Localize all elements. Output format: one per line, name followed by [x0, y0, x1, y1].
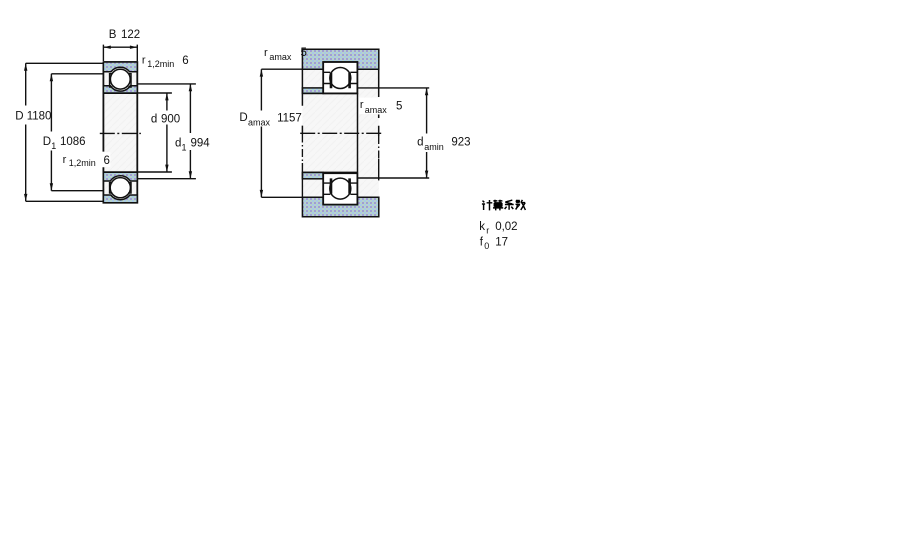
svg-text:r: r — [360, 99, 364, 111]
svg-text:1,2min: 1,2min — [69, 158, 96, 168]
svg-text:6: 6 — [182, 55, 188, 67]
svg-text:1180: 1180 — [27, 110, 52, 122]
svg-text:B: B — [109, 29, 117, 41]
svg-text:amax: amax — [365, 105, 388, 115]
svg-text:r: r — [486, 226, 489, 236]
svg-text:122: 122 — [121, 29, 140, 41]
svg-text:1: 1 — [182, 143, 187, 153]
svg-text:r: r — [264, 47, 268, 59]
svg-text:0: 0 — [484, 241, 489, 251]
svg-text:994: 994 — [191, 138, 211, 150]
svg-text:r: r — [142, 54, 146, 66]
svg-text:r: r — [63, 154, 67, 166]
svg-text:amin: amin — [424, 142, 444, 152]
svg-text:5: 5 — [301, 47, 307, 59]
svg-text:D: D — [239, 112, 247, 124]
svg-text:k: k — [479, 221, 485, 233]
svg-text:6: 6 — [104, 155, 110, 167]
svg-text:1086: 1086 — [60, 136, 86, 148]
svg-text:D: D — [15, 110, 23, 122]
svg-text:1: 1 — [51, 141, 56, 151]
svg-text:923: 923 — [451, 137, 470, 149]
svg-text:f: f — [480, 237, 484, 249]
svg-text:amax: amax — [248, 117, 271, 127]
svg-text:d: d — [151, 113, 157, 125]
svg-text:amax: amax — [269, 52, 292, 62]
svg-text:d: d — [417, 137, 423, 149]
svg-text:0,02: 0,02 — [495, 221, 517, 233]
svg-text:900: 900 — [161, 113, 180, 125]
svg-text:d: d — [175, 138, 181, 150]
svg-text:1,2min: 1,2min — [147, 59, 174, 69]
svg-text:5: 5 — [396, 100, 402, 112]
svg-text:17: 17 — [495, 237, 508, 249]
svg-text:D: D — [43, 136, 51, 148]
svg-text:1157: 1157 — [277, 112, 302, 124]
